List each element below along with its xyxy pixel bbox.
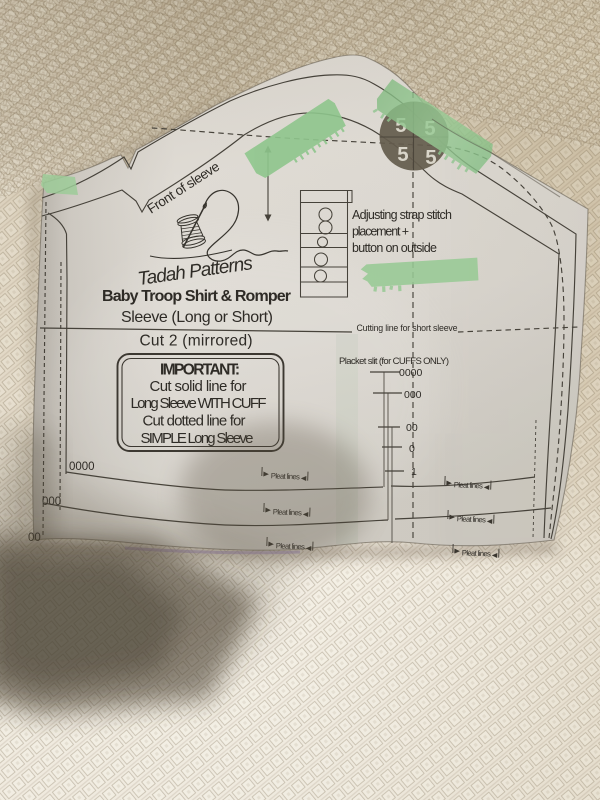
svg-text:0000: 0000 (399, 367, 423, 379)
svg-text:Cutting line for short sleeve: Cutting line for short sleeve (357, 323, 458, 333)
svg-text:Cut 2 (mirrored): Cut 2 (mirrored) (140, 333, 253, 350)
svg-text:Placket slit (for CUFFS ONLY): Placket slit (for CUFFS ONLY) (339, 356, 449, 367)
svg-text:Cut solid line for: Cut solid line for (150, 378, 247, 395)
svg-text:Long Sleeve WITH CUFF: Long Sleeve WITH CUFF (131, 395, 267, 412)
svg-text:0: 0 (409, 443, 415, 455)
svg-text:5: 5 (397, 143, 408, 166)
svg-text:Sleeve (Long or Short): Sleeve (Long or Short) (121, 309, 273, 326)
svg-text:Cut dotted line for: Cut dotted line for (143, 413, 246, 430)
svg-text:Baby Troop Shirt & Romper: Baby Troop Shirt & Romper (102, 288, 291, 305)
svg-text:0000: 0000 (69, 461, 95, 473)
svg-text:placement +: placement + (352, 225, 409, 239)
svg-text:000: 000 (404, 389, 422, 401)
svg-text:button on outside: button on outside (352, 241, 437, 255)
svg-text:Adjusting strap stitch: Adjusting strap stitch (352, 208, 452, 222)
svg-text:IMPORTANT:: IMPORTANT: (160, 362, 240, 379)
svg-text:00: 00 (406, 422, 418, 434)
svg-text:5: 5 (425, 146, 436, 169)
svg-text:1: 1 (411, 466, 417, 478)
